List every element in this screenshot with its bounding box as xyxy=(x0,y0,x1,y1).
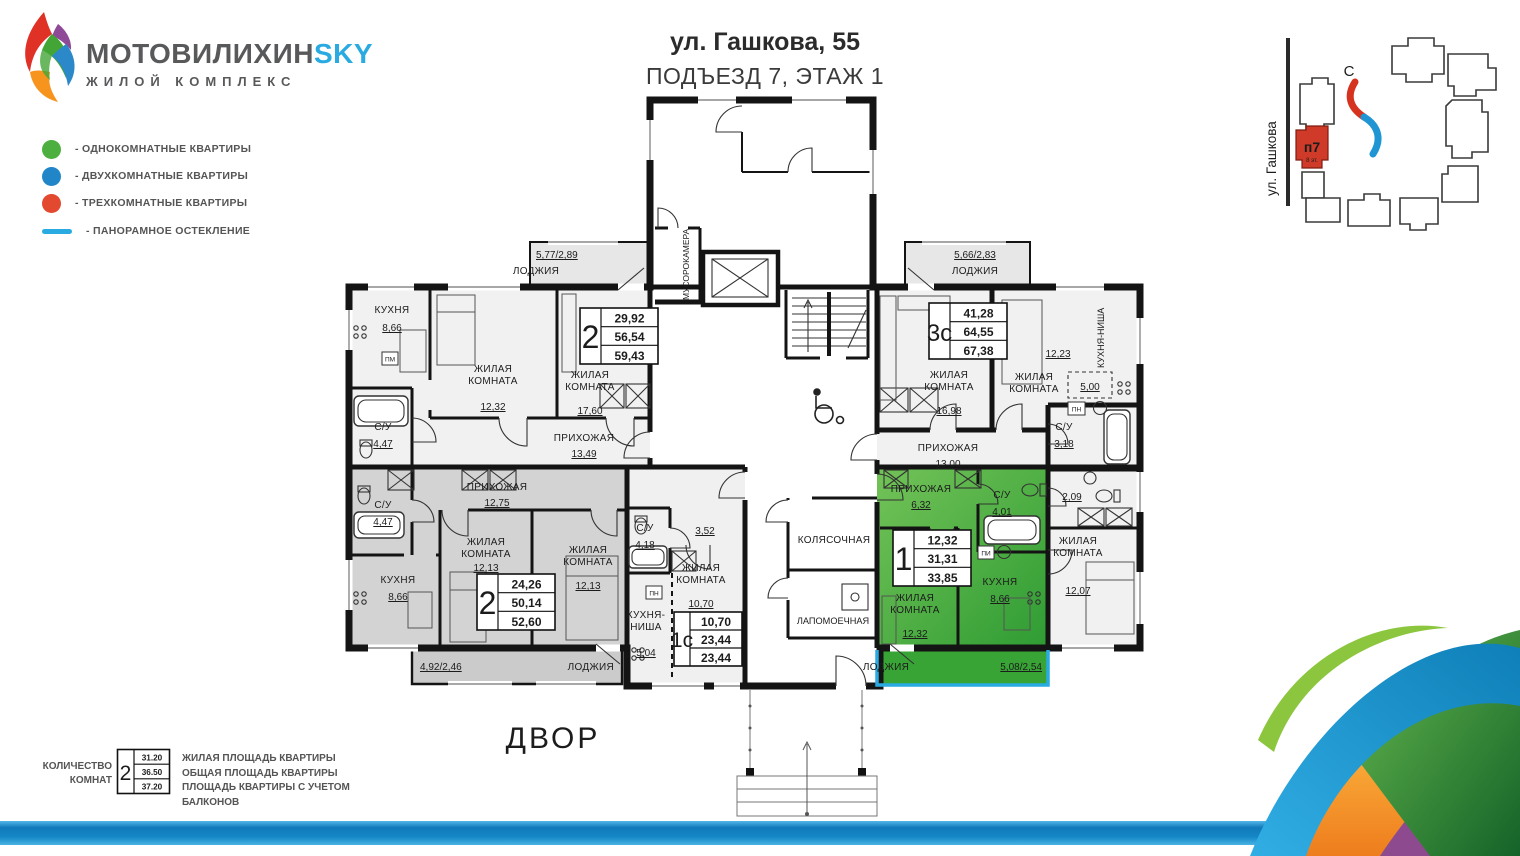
apartment-badge: 3с 41,28 64,55 67,38 xyxy=(927,303,1007,359)
wheelchair-icon xyxy=(814,389,844,424)
three-room-dot-icon xyxy=(42,194,61,213)
svg-text:37.20: 37.20 xyxy=(142,783,163,792)
loggia-area: 5,66/2,83 xyxy=(954,250,996,261)
room-area: 5,04 xyxy=(636,648,656,659)
elevator-icon xyxy=(703,252,778,305)
loggia-label: ЛОДЖИЯ xyxy=(568,662,614,673)
loggia-label: ЛОДЖИЯ xyxy=(863,662,909,673)
svg-text:56,54: 56,54 xyxy=(614,330,644,344)
room-label: ЖИЛАЯКОМНАТА xyxy=(461,537,511,560)
room-label: ЖИЛАЯКОМНАТА xyxy=(924,370,974,393)
room-area: 2,09 xyxy=(1062,492,1082,503)
svg-text:33,85: 33,85 xyxy=(927,571,957,585)
stroller-room-label: КОЛЯСОЧНАЯ xyxy=(798,535,871,546)
svg-text:50,14: 50,14 xyxy=(511,596,541,610)
key-desc-with-balcony: ПЛОЩАДЬ КВАРТИРЫ С УЧЕТОМ БАЛКОНОВ xyxy=(182,781,382,810)
room-area: 16,98 xyxy=(936,406,961,417)
room-area: 12,23 xyxy=(1045,349,1070,360)
svg-text:ПМ: ПМ xyxy=(385,357,395,364)
legend-label: - ПАНОРАМНОЕ ОСТЕКЛЕНИЕ xyxy=(86,225,250,237)
brand-waves-graphic xyxy=(1248,575,1520,856)
svg-text:2: 2 xyxy=(120,762,132,785)
stairs-icon xyxy=(792,292,866,356)
key-desc-living: ЖИЛАЯ ПЛОЩАДЬ КВАРТИРЫ xyxy=(182,752,382,767)
legend-label: - ТРЕХКОМНАТНЫЕ КВАРТИРЫ xyxy=(75,197,247,209)
room-label: КУХНЯ xyxy=(375,305,410,316)
room-area: 17,60 xyxy=(577,406,602,417)
minimap-block-p7[interactable]: п7 8 эт. xyxy=(1296,126,1328,168)
legend-item-2room: - ДВУХКОМНАТНЫЕ КВАРТИРЫ xyxy=(42,165,248,187)
street-label: ул. Гашкова xyxy=(1264,121,1279,196)
paw-wash-room-label: ЛАПОМОЕЧНАЯ xyxy=(797,616,869,626)
room-area: 13,00 xyxy=(935,459,960,470)
room-area: 13,49 xyxy=(571,449,596,460)
room-label: ЖИЛАЯКОМНАТА xyxy=(565,370,615,393)
room-label: ПРИХОЖАЯ xyxy=(554,433,614,444)
svg-text:ПИ: ПИ xyxy=(981,551,991,558)
room-area: 8,66 xyxy=(990,594,1010,605)
room-area: 12,32 xyxy=(902,629,927,640)
room-label: С/У xyxy=(374,422,392,433)
legend-label: - ДВУХКОМНАТНЫЕ КВАРТИРЫ xyxy=(75,170,248,182)
svg-text:23,44: 23,44 xyxy=(701,633,731,647)
svg-text:1: 1 xyxy=(895,541,913,577)
yard-label: ДВОР xyxy=(506,722,601,755)
svg-text:29,92: 29,92 xyxy=(614,312,644,326)
room-area: 4,47 xyxy=(373,517,393,528)
room-area: 4,18 xyxy=(635,540,655,551)
room-area: 12,32 xyxy=(480,402,505,413)
room-area: 3,18 xyxy=(1054,439,1074,450)
brand-main: МОТОВИЛИХИН xyxy=(86,38,314,69)
svg-text:12,32: 12,32 xyxy=(927,534,957,548)
svg-text:64,55: 64,55 xyxy=(963,325,993,339)
room-label: С/У xyxy=(993,490,1011,501)
legend-item-3room: - ТРЕХКОМНАТНЫЕ КВАРТИРЫ xyxy=(42,192,247,214)
svg-text:67,38: 67,38 xyxy=(963,344,993,358)
room-label: С/У xyxy=(636,523,654,534)
loggia-label: ЛОДЖИЯ xyxy=(952,266,998,277)
room-label: ЖИЛАЯКОМНАТА xyxy=(1009,372,1059,395)
entrance-porch xyxy=(737,690,877,816)
room-label: С/У xyxy=(1055,422,1073,433)
room-area: 8,66 xyxy=(388,592,408,603)
page-title: ул. Гашкова, 55 ПОДЪЕЗД 7, ЭТАЖ 1 xyxy=(540,28,990,90)
two-room-dot-icon xyxy=(42,167,61,186)
room-area: 3,52 xyxy=(695,526,715,537)
room-label: ЖИЛАЯКОМНАТА xyxy=(1053,536,1103,559)
rooms-count-label: КОЛИЧЕСТВО КОМНАТ xyxy=(18,760,112,788)
room-label: КУХНЯ xyxy=(381,575,416,586)
key-descriptions: ЖИЛАЯ ПЛОЩАДЬ КВАРТИРЫ ОБЩАЯ ПЛОЩАДЬ КВА… xyxy=(182,752,382,810)
address-title: ул. Гашкова, 55 xyxy=(540,28,990,57)
svg-text:2: 2 xyxy=(479,585,497,621)
apartment-badge: 2 24,26 50,14 52,60 xyxy=(477,574,555,630)
room-label: ЖИЛАЯКОМНАТА xyxy=(676,563,726,586)
block-label: п7 xyxy=(1304,139,1320,155)
legend-item-1room: - ОДНОКОМНАТНЫЕ КВАРТИРЫ xyxy=(42,138,251,160)
room-label: ПРИХОЖАЯ xyxy=(918,443,978,454)
apartment-badge: 2 29,92 56,54 59,43 xyxy=(580,308,658,364)
room-label: ЖИЛАЯКОМНАТА xyxy=(468,364,518,387)
trash-room-label: МУСОРОКАМЕРА xyxy=(681,228,691,300)
room-area: 4,01 xyxy=(992,507,1012,518)
room-label: С/У xyxy=(374,500,392,511)
room-area: 4,47 xyxy=(373,439,393,450)
room-area: 12,75 xyxy=(484,498,509,509)
brand-name: МОТОВИЛИХИНSKY ЖИЛОЙ КОМПЛЕКС xyxy=(86,38,373,89)
building-outlines xyxy=(1300,38,1496,230)
svg-text:23,44: 23,44 xyxy=(701,651,731,665)
room-label: КУХНЯ-НИША xyxy=(627,610,666,633)
room-label: ЖИЛАЯКОМНАТА xyxy=(890,593,940,616)
svg-text:3с: 3с xyxy=(927,320,952,347)
compass-north-label: С xyxy=(1344,63,1355,80)
room-area: 12,13 xyxy=(575,581,600,592)
brand-logo-flame xyxy=(14,10,88,108)
svg-text:31.20: 31.20 xyxy=(142,754,163,763)
brand-subtitle: ЖИЛОЙ КОМПЛЕКС xyxy=(86,74,373,89)
apartment-badge: 1 12,32 31,31 33,85 xyxy=(893,530,971,586)
block-floors-label: 8 эт. xyxy=(1306,158,1318,164)
svg-text:ПН: ПН xyxy=(1072,407,1082,414)
legend-item-glazing: - ПАНОРАМНОЕ ОСТЕКЛЕНИЕ xyxy=(42,220,250,242)
svg-text:52,60: 52,60 xyxy=(511,615,541,629)
svg-text:41,28: 41,28 xyxy=(963,307,993,321)
svg-text:10,70: 10,70 xyxy=(701,615,731,629)
svg-text:59,43: 59,43 xyxy=(614,349,644,363)
room-label: ПРИХОЖАЯ xyxy=(891,484,951,495)
entrance-floor-title: ПОДЪЕЗД 7, ЭТАЖ 1 xyxy=(540,63,990,90)
svg-text:2: 2 xyxy=(582,319,600,355)
room-label: ПРИХОЖАЯ xyxy=(467,482,527,493)
room-area: 5,00 xyxy=(1080,382,1100,393)
loggia-area: 5,77/2,89 xyxy=(536,250,578,261)
svg-text:ПН: ПН xyxy=(649,591,659,598)
svg-text:36.50: 36.50 xyxy=(142,768,163,777)
room-area: 10,70 xyxy=(688,599,713,610)
floor-plan: ПМ ПН ПН ПИ xyxy=(340,88,1160,825)
svg-text:24,26: 24,26 xyxy=(511,578,541,592)
loggia-label: ЛОДЖИЯ xyxy=(513,266,559,277)
loggia-area: 4,92/2,46 xyxy=(420,662,462,673)
loggia-area: 5,08/2,54 xyxy=(1000,662,1042,673)
key-desc-total: ОБЩАЯ ПЛОЩАДЬ КВАРТИРЫ xyxy=(182,767,382,782)
site-minimap: ул. Гашкова п7 8 эт. С xyxy=(1250,22,1520,232)
room-label: ЖИЛАЯКОМНАТА xyxy=(563,545,613,568)
panoramic-glazing-line-icon xyxy=(42,229,72,234)
room-area: 8,66 xyxy=(382,323,402,334)
room-label: КУХНЯ-НИША xyxy=(1096,308,1106,368)
room-area: 6,32 xyxy=(911,500,931,511)
room-area: 12,13 xyxy=(473,563,498,574)
legend-label: - ОДНОКОМНАТНЫЕ КВАРТИРЫ xyxy=(75,143,251,155)
svg-text:31,31: 31,31 xyxy=(927,552,957,566)
room-label: КУХНЯ xyxy=(983,577,1018,588)
one-room-dot-icon xyxy=(42,140,61,159)
svg-text:1с: 1с xyxy=(671,629,693,652)
key-badge-sample: 2 31.20 36.50 37.20 xyxy=(116,748,172,796)
brand-accent: SKY xyxy=(314,38,373,69)
apartment-badge: 1с 10,70 23,44 23,44 xyxy=(671,612,742,666)
room-area: 12,07 xyxy=(1065,586,1090,597)
compass-icon: С xyxy=(1344,63,1378,154)
